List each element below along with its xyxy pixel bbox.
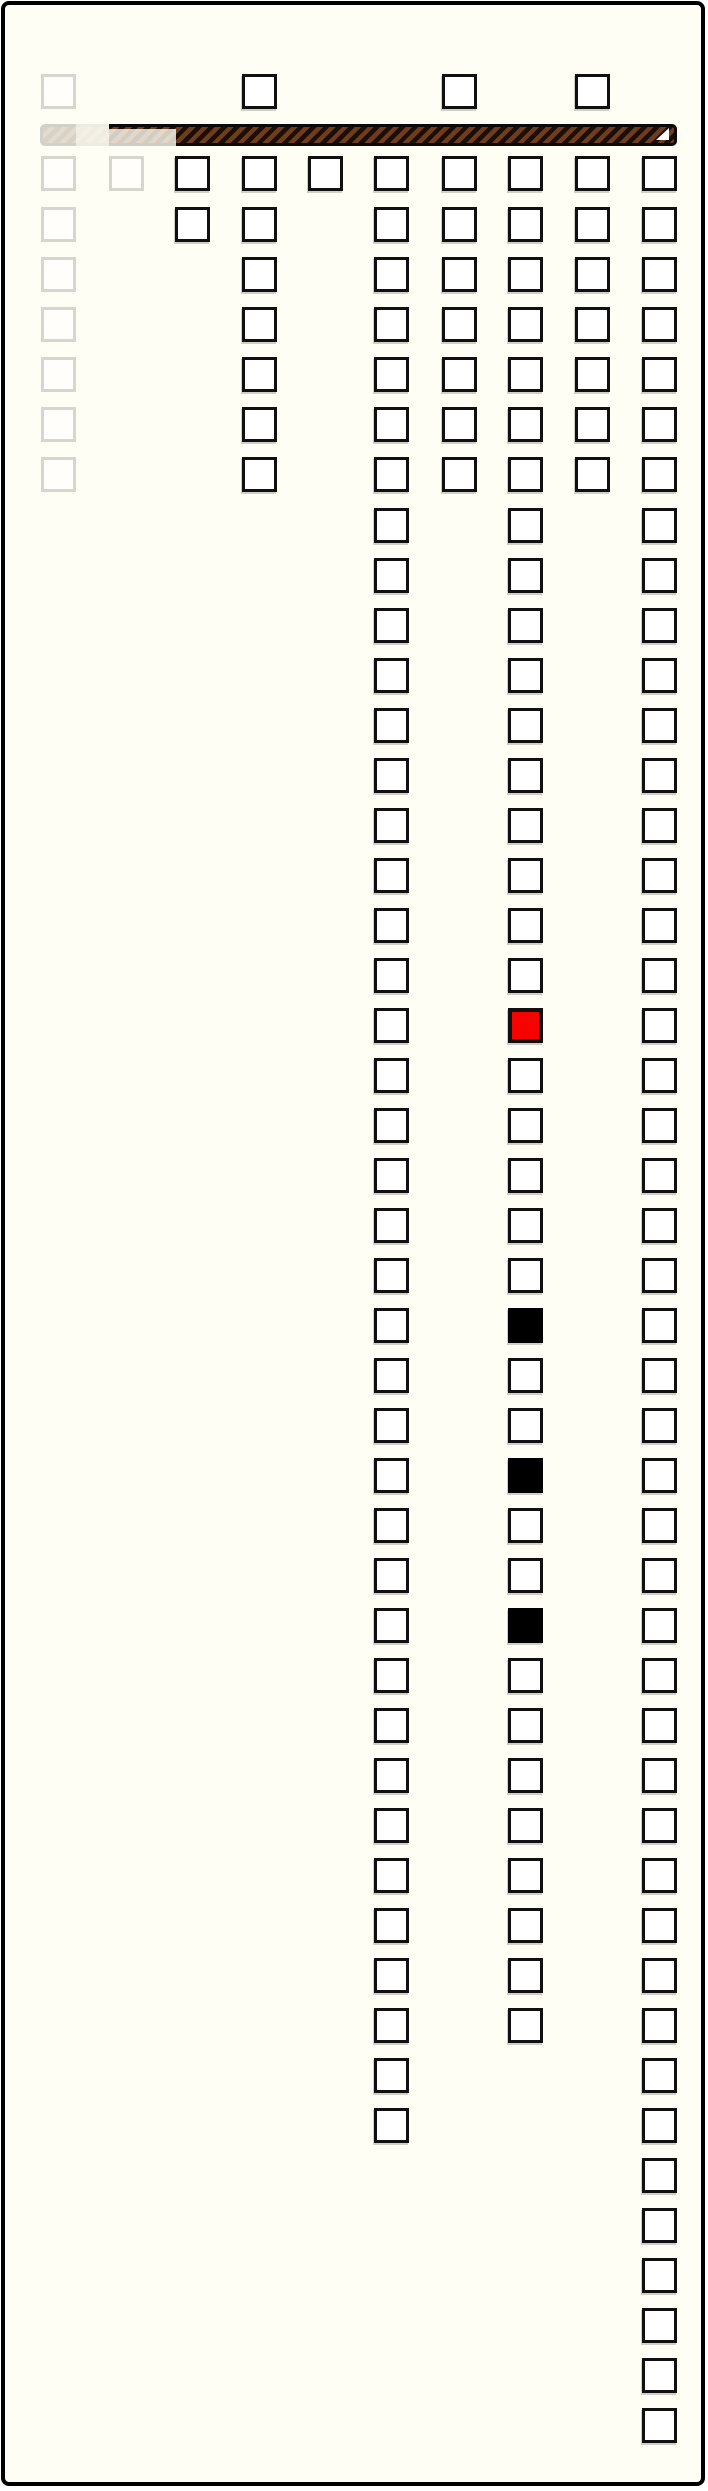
fade-overlay-3 [109, 129, 176, 148]
checkbox-unchecked[interactable] [642, 658, 677, 693]
checkbox-black-filled[interactable] [508, 1458, 543, 1493]
checkbox-unchecked[interactable] [642, 2008, 677, 2043]
checkbox-unchecked[interactable] [642, 1558, 677, 1593]
checkbox-unchecked[interactable] [374, 156, 409, 191]
checkbox-unchecked[interactable] [374, 457, 409, 492]
checkbox-unchecked[interactable] [374, 2008, 409, 2043]
checkbox-red-filled[interactable] [508, 1008, 543, 1043]
checkbox-unchecked[interactable] [442, 257, 477, 292]
checkbox-unchecked[interactable] [508, 658, 543, 693]
checkbox-unchecked[interactable] [508, 1958, 543, 1993]
checkbox-unchecked[interactable] [508, 758, 543, 793]
checkbox-unchecked[interactable] [642, 407, 677, 442]
checkbox-unchecked[interactable] [242, 357, 277, 392]
checkbox-unchecked[interactable] [642, 2108, 677, 2143]
checkbox-unchecked[interactable] [508, 508, 543, 543]
checkbox-unchecked[interactable] [642, 2258, 677, 2293]
checkbox-unchecked[interactable] [374, 257, 409, 292]
checkbox-unchecked[interactable] [374, 1758, 409, 1793]
checkbox-unchecked[interactable] [442, 207, 477, 242]
checkbox-unchecked[interactable] [508, 207, 543, 242]
checkbox-unchecked[interactable] [642, 2358, 677, 2393]
checkbox-unchecked[interactable] [642, 1408, 677, 1443]
checkbox-unchecked[interactable] [642, 1108, 677, 1143]
checkbox-unchecked[interactable] [642, 558, 677, 593]
checkbox-unchecked[interactable] [642, 1258, 677, 1293]
checkbox-unchecked[interactable] [374, 558, 409, 593]
checkbox-unchecked[interactable] [508, 457, 543, 492]
checkbox-unchecked[interactable] [642, 307, 677, 342]
checkbox-unchecked[interactable] [642, 608, 677, 643]
checkbox-unchecked[interactable] [642, 1958, 677, 1993]
checkbox-unchecked[interactable] [374, 508, 409, 543]
checkbox-unchecked[interactable] [242, 156, 277, 191]
checkbox-unchecked[interactable] [642, 1858, 677, 1893]
checkbox-unchecked[interactable] [374, 1358, 409, 1393]
checkbox-unchecked[interactable] [374, 1108, 409, 1143]
checkbox-unchecked[interactable] [175, 207, 210, 242]
progress-bar-end-notch-icon [656, 128, 669, 140]
fade-overlay-1 [40, 122, 76, 148]
checkbox-unchecked[interactable] [374, 357, 409, 392]
checkbox-unchecked[interactable] [575, 457, 610, 492]
fade-overlay-2 [76, 122, 109, 148]
checkbox-unchecked[interactable] [642, 1158, 677, 1193]
checkbox-unchecked[interactable] [508, 1758, 543, 1793]
checkbox-unchecked[interactable] [374, 808, 409, 843]
checkbox-unchecked[interactable] [642, 758, 677, 793]
checkbox-unchecked[interactable] [508, 1708, 543, 1743]
checkbox-unchecked[interactable] [374, 958, 409, 993]
checkbox-unchecked[interactable] [442, 407, 477, 442]
checkbox-unchecked[interactable] [242, 74, 277, 109]
checkbox-unchecked[interactable] [508, 908, 543, 943]
checkbox-unchecked[interactable] [642, 357, 677, 392]
checkbox-unchecked[interactable] [374, 758, 409, 793]
checkbox-disabled [41, 357, 76, 392]
checkbox-unchecked[interactable] [642, 808, 677, 843]
checkbox-unchecked[interactable] [642, 1308, 677, 1343]
checkbox-disabled [41, 156, 76, 191]
checkbox-disabled [41, 74, 76, 109]
checkbox-unchecked[interactable] [374, 1658, 409, 1693]
checkbox-unchecked[interactable] [642, 958, 677, 993]
checkbox-unchecked[interactable] [374, 858, 409, 893]
checkbox-unchecked[interactable] [374, 1408, 409, 1443]
checkbox-unchecked[interactable] [508, 257, 543, 292]
checkbox-unchecked[interactable] [642, 1658, 677, 1693]
checkbox-disabled [109, 156, 144, 191]
checkbox-unchecked[interactable] [308, 156, 343, 191]
checkbox-unchecked[interactable] [508, 1558, 543, 1593]
checkbox-unchecked[interactable] [374, 1258, 409, 1293]
checkbox-unchecked[interactable] [374, 1508, 409, 1543]
checkbox-unchecked[interactable] [642, 1708, 677, 1743]
checkbox-unchecked[interactable] [642, 1058, 677, 1093]
checkbox-unchecked[interactable] [508, 858, 543, 893]
checkbox-unchecked[interactable] [642, 1208, 677, 1243]
checkbox-unchecked[interactable] [508, 958, 543, 993]
checkbox-unchecked[interactable] [374, 1858, 409, 1893]
checkbox-unchecked[interactable] [642, 156, 677, 191]
checkbox-unchecked[interactable] [374, 1058, 409, 1093]
checkbox-disabled [41, 407, 76, 442]
checkbox-unchecked[interactable] [175, 156, 210, 191]
checkbox-unchecked[interactable] [642, 1358, 677, 1393]
checkbox-unchecked[interactable] [642, 908, 677, 943]
checkbox-unchecked[interactable] [374, 1208, 409, 1243]
checkbox-unchecked[interactable] [642, 708, 677, 743]
checkbox-unchecked[interactable] [642, 1908, 677, 1943]
checkbox-unchecked[interactable] [642, 1508, 677, 1543]
checkbox-unchecked[interactable] [374, 2058, 409, 2093]
checkbox-unchecked[interactable] [508, 1058, 543, 1093]
checkbox-disabled [41, 307, 76, 342]
checkbox-unchecked[interactable] [242, 457, 277, 492]
checkbox-unchecked[interactable] [374, 1158, 409, 1193]
checkbox-unchecked[interactable] [642, 1458, 677, 1493]
checkbox-unchecked[interactable] [374, 207, 409, 242]
left-border-fade-overlay [5, 41, 15, 524]
checkbox-unchecked[interactable] [508, 407, 543, 442]
checkbox-unchecked[interactable] [508, 357, 543, 392]
checkbox-unchecked[interactable] [575, 357, 610, 392]
checkbox-unchecked[interactable] [642, 2208, 677, 2243]
checkbox-unchecked[interactable] [508, 1108, 543, 1143]
checkbox-black-filled[interactable] [508, 1608, 543, 1643]
checkbox-unchecked[interactable] [575, 257, 610, 292]
checkbox-unchecked[interactable] [575, 156, 610, 191]
checkbox-unchecked[interactable] [508, 156, 543, 191]
checkbox-unchecked[interactable] [508, 2008, 543, 2043]
checkbox-unchecked[interactable] [508, 808, 543, 843]
checkbox-unchecked[interactable] [508, 1508, 543, 1543]
checkbox-unchecked[interactable] [242, 307, 277, 342]
checkbox-unchecked[interactable] [508, 1258, 543, 1293]
checkbox-unchecked[interactable] [642, 858, 677, 893]
checkbox-unchecked[interactable] [442, 357, 477, 392]
checkbox-unchecked[interactable] [374, 908, 409, 943]
checkbox-unchecked[interactable] [374, 1808, 409, 1843]
checkbox-unchecked[interactable] [242, 257, 277, 292]
checkbox-disabled [41, 257, 76, 292]
checkbox-unchecked[interactable] [642, 1008, 677, 1043]
checkbox-unchecked[interactable] [508, 1208, 543, 1243]
checkbox-unchecked[interactable] [575, 207, 610, 242]
checkbox-unchecked[interactable] [374, 1708, 409, 1743]
checkbox-unchecked[interactable] [442, 74, 477, 109]
page-canvas [1, 1, 705, 2486]
checkbox-unchecked[interactable] [642, 1808, 677, 1843]
checkbox-unchecked[interactable] [575, 407, 610, 442]
checkbox-unchecked[interactable] [642, 2408, 677, 2443]
checkbox-unchecked[interactable] [575, 74, 610, 109]
checkbox-unchecked[interactable] [508, 1658, 543, 1693]
checkbox-unchecked[interactable] [642, 457, 677, 492]
checkbox-unchecked[interactable] [642, 1758, 677, 1793]
checkbox-black-filled[interactable] [508, 1308, 543, 1343]
checkbox-disabled [41, 457, 76, 492]
checkbox-unchecked[interactable] [508, 1358, 543, 1393]
checkbox-unchecked[interactable] [374, 407, 409, 442]
checkbox-unchecked[interactable] [374, 658, 409, 693]
checkbox-unchecked[interactable] [575, 307, 610, 342]
checkbox-unchecked[interactable] [642, 2308, 677, 2343]
checkbox-unchecked[interactable] [642, 257, 677, 292]
checkbox-unchecked[interactable] [508, 1158, 543, 1193]
checkbox-unchecked[interactable] [374, 1558, 409, 1593]
checkbox-unchecked[interactable] [508, 307, 543, 342]
checkbox-unchecked[interactable] [374, 307, 409, 342]
checkbox-unchecked[interactable] [374, 608, 409, 643]
checkbox-disabled [41, 207, 76, 242]
checkbox-unchecked[interactable] [508, 1908, 543, 1943]
checkbox-unchecked[interactable] [642, 1608, 677, 1643]
checkbox-unchecked[interactable] [508, 1858, 543, 1893]
checkbox-unchecked[interactable] [374, 1308, 409, 1343]
checkbox-unchecked[interactable] [242, 407, 277, 442]
checkbox-unchecked[interactable] [374, 708, 409, 743]
checkbox-unchecked[interactable] [374, 1908, 409, 1943]
checkbox-unchecked[interactable] [374, 1458, 409, 1493]
checkbox-unchecked[interactable] [642, 508, 677, 543]
checkbox-unchecked[interactable] [442, 457, 477, 492]
checkbox-unchecked[interactable] [442, 307, 477, 342]
checkbox-unchecked[interactable] [508, 1408, 543, 1443]
checkbox-unchecked[interactable] [374, 1608, 409, 1643]
checkbox-unchecked[interactable] [242, 207, 277, 242]
checkbox-unchecked[interactable] [374, 1008, 409, 1043]
checkbox-unchecked[interactable] [442, 156, 477, 191]
checkbox-unchecked[interactable] [642, 207, 677, 242]
checkbox-unchecked[interactable] [508, 608, 543, 643]
checkbox-unchecked[interactable] [508, 558, 543, 593]
checkbox-unchecked[interactable] [374, 2108, 409, 2143]
checkbox-unchecked[interactable] [374, 1958, 409, 1993]
checkbox-unchecked[interactable] [508, 708, 543, 743]
checkbox-unchecked[interactable] [508, 1808, 543, 1843]
checkbox-unchecked[interactable] [642, 2158, 677, 2193]
checkbox-unchecked[interactable] [642, 2058, 677, 2093]
